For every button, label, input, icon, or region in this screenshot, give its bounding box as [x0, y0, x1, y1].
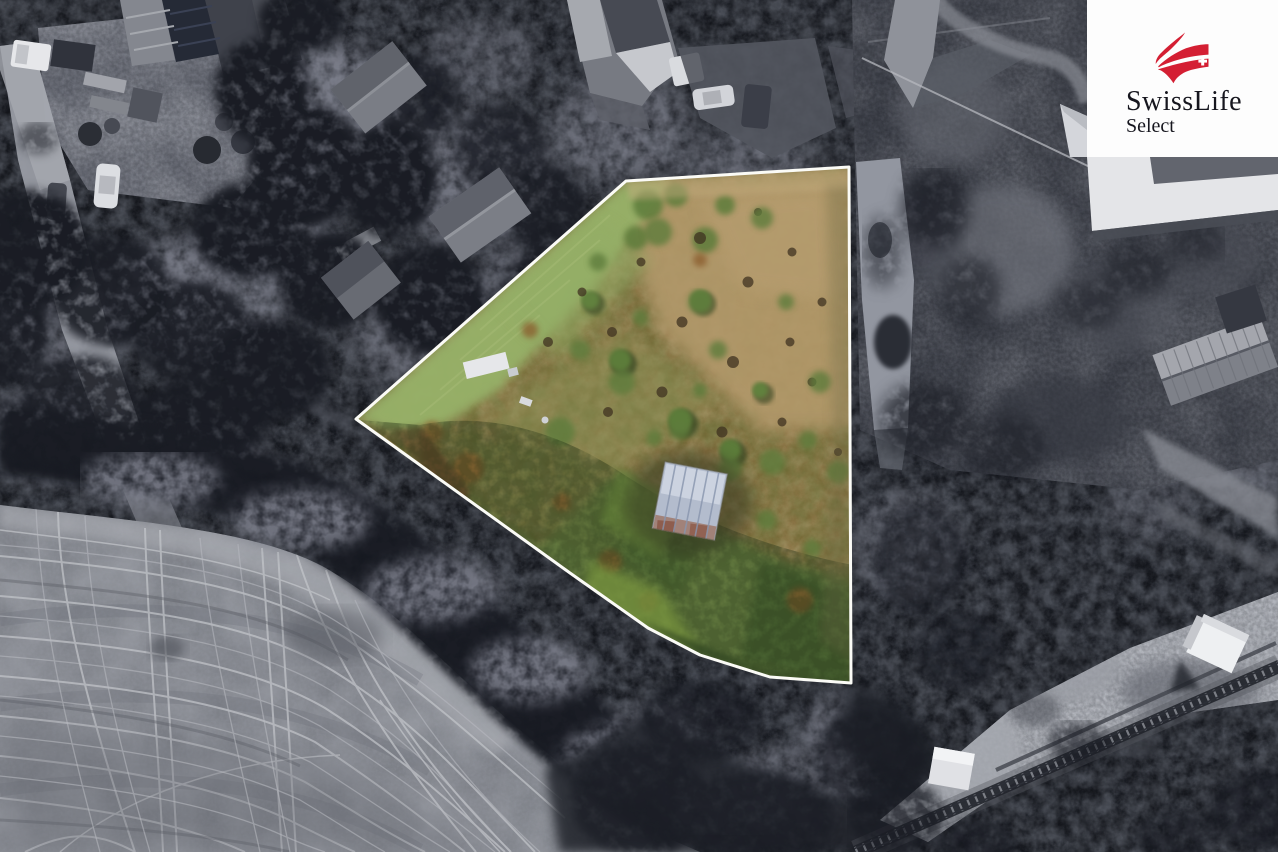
svg-text:SwissLife: SwissLife: [1126, 86, 1242, 117]
svg-text:Select: Select: [1126, 115, 1175, 137]
